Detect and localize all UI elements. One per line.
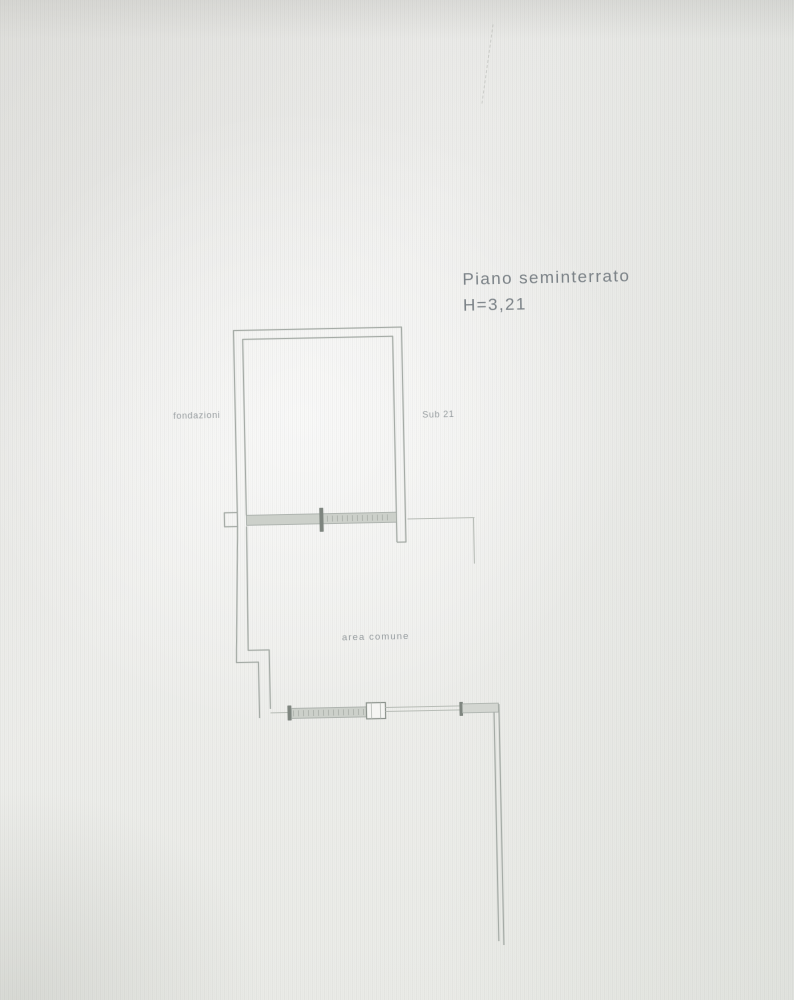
bottom-thin-double-wall: [385, 706, 460, 712]
door-jamb-mid: [319, 508, 324, 532]
label-area-comune: area comune: [342, 631, 410, 643]
window-symbol: [366, 702, 385, 718]
label-sub: Sub 21: [422, 409, 454, 420]
ceiling-height-label: H=3,21: [463, 294, 527, 314]
bottom-wall-band-right: [462, 703, 498, 713]
door-jamb-left: [287, 705, 291, 720]
scanned-floorplan-page: Piano seminterrato H=3,21 fondazioni Sub…: [0, 0, 794, 1000]
floor-plan-drawing: Piano seminterrato H=3,21 fondazioni Sub…: [0, 0, 794, 1000]
right-stub-wall: [407, 518, 475, 565]
right-boundary-wall: [494, 704, 504, 945]
corridor-left-inner-wall: [246, 526, 271, 709]
floor-title: Piano seminterrato: [462, 266, 630, 289]
plan-group: Piano seminterrato H=3,21 fondazioni Sub…: [170, 266, 644, 951]
left-wall-protrusion: [224, 513, 237, 527]
label-fondazioni: fondazioni: [173, 410, 220, 421]
